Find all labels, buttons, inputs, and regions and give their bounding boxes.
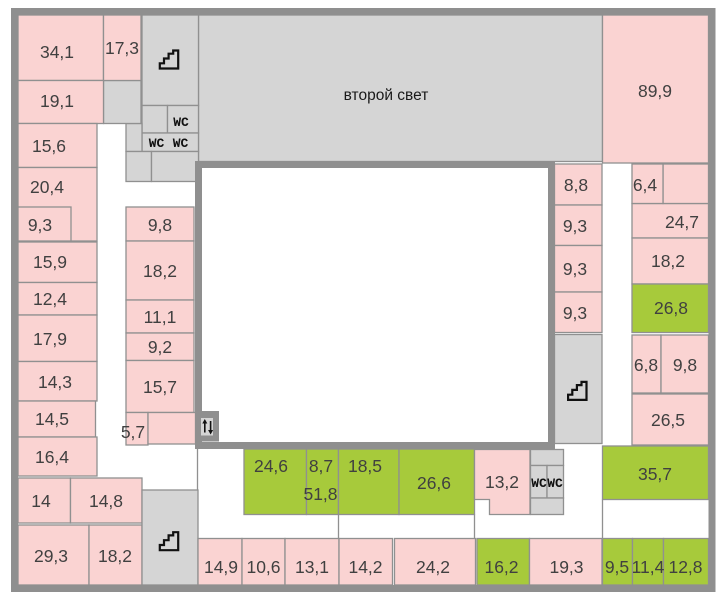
svg-text:18,2: 18,2 [98,546,132,566]
svg-text:11,1: 11,1 [144,307,177,327]
svg-text:WC: WC [173,115,189,130]
svg-text:9,5: 9,5 [605,557,629,577]
svg-text:17,3: 17,3 [105,38,139,58]
svg-text:35,7: 35,7 [638,464,672,484]
svg-text:9,3: 9,3 [563,303,587,323]
svg-text:14,2: 14,2 [348,557,382,577]
svg-text:14,3: 14,3 [38,372,72,392]
svg-text:24,2: 24,2 [416,557,450,577]
svg-text:WC: WC [173,136,189,151]
svg-text:15,7: 15,7 [143,377,177,397]
svg-text:WC: WC [149,136,165,151]
svg-text:34,1: 34,1 [40,42,74,62]
svg-text:17,9: 17,9 [33,329,67,349]
svg-text:26,5: 26,5 [651,410,685,430]
svg-text:14: 14 [31,491,51,511]
svg-text:19,3: 19,3 [549,557,583,577]
svg-text:13,1: 13,1 [295,557,329,577]
svg-text:14,9: 14,9 [204,557,238,577]
svg-text:11,4: 11,4 [632,557,665,577]
svg-text:18,5: 18,5 [348,456,382,476]
svg-text:18,2: 18,2 [651,251,685,271]
svg-text:12,8: 12,8 [668,557,702,577]
svg-text:WC: WC [531,476,547,491]
svg-text:5,7: 5,7 [121,422,145,442]
svg-text:16,2: 16,2 [484,557,518,577]
svg-text:24,7: 24,7 [665,212,699,232]
svg-text:WC: WC [547,476,563,491]
svg-text:12,4: 12,4 [33,289,67,309]
svg-text:6,8: 6,8 [634,355,658,375]
svg-text:6,4: 6,4 [633,175,658,195]
svg-text:14,5: 14,5 [35,409,69,429]
svg-text:51,8: 51,8 [303,484,337,504]
svg-text:15,9: 15,9 [33,252,67,272]
svg-text:19,1: 19,1 [40,91,74,111]
svg-text:9,8: 9,8 [673,355,697,375]
svg-text:18,2: 18,2 [143,261,177,281]
svg-text:8,8: 8,8 [564,175,588,195]
svg-text:9,3: 9,3 [563,259,587,279]
svg-text:26,6: 26,6 [417,473,451,493]
svg-text:9,2: 9,2 [148,337,172,357]
svg-text:16,4: 16,4 [35,447,69,467]
svg-text:9,8: 9,8 [148,215,172,235]
svg-text:26,8: 26,8 [654,298,688,318]
svg-text:29,3: 29,3 [34,546,68,566]
svg-text:второй свет: второй свет [344,87,429,104]
svg-text:24,6: 24,6 [254,456,288,476]
svg-text:14,8: 14,8 [89,491,123,511]
svg-text:20,4: 20,4 [30,177,64,197]
svg-text:89,9: 89,9 [638,81,672,101]
svg-text:9,3: 9,3 [28,215,52,235]
svg-text:15,6: 15,6 [32,136,66,156]
svg-text:10,6: 10,6 [246,557,280,577]
svg-text:8,7: 8,7 [309,456,333,476]
svg-text:9,3: 9,3 [563,216,587,236]
svg-text:13,2: 13,2 [485,472,519,492]
